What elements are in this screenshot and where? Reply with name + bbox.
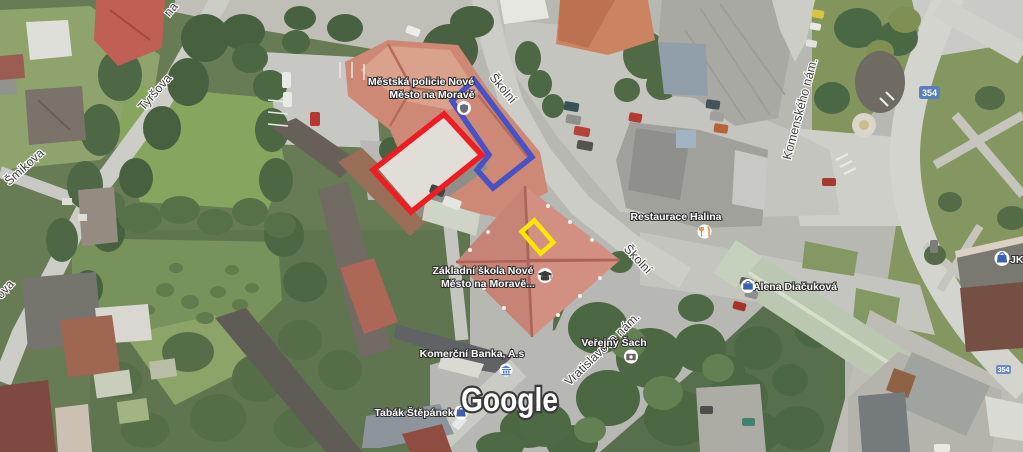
svg-text:354: 354 (998, 367, 1010, 374)
svg-text:Základní škola Nové: Základní škola Nové (433, 265, 534, 277)
svg-text:Restaurace Halina: Restaurace Halina (630, 211, 721, 223)
svg-text:Městská policie Nové: Městská policie Nové (368, 76, 474, 88)
svg-text:Google: Google (461, 381, 558, 418)
svg-text:354: 354 (922, 88, 937, 98)
svg-text:Město na Moravě: Město na Moravě (389, 89, 474, 101)
svg-text:Veřejný Šach: Veřejný Šach (581, 336, 646, 349)
svg-text:Alena Diačuková: Alena Diačuková (753, 281, 837, 293)
svg-text:Komerční Banka, A.s: Komerční Banka, A.s (420, 348, 525, 360)
svg-text:JK...: JK... (1010, 254, 1023, 266)
svg-text:Město na Moravě...: Město na Moravě... (441, 278, 535, 290)
svg-text:Tabák Štěpánek: Tabák Štěpánek (374, 406, 453, 419)
